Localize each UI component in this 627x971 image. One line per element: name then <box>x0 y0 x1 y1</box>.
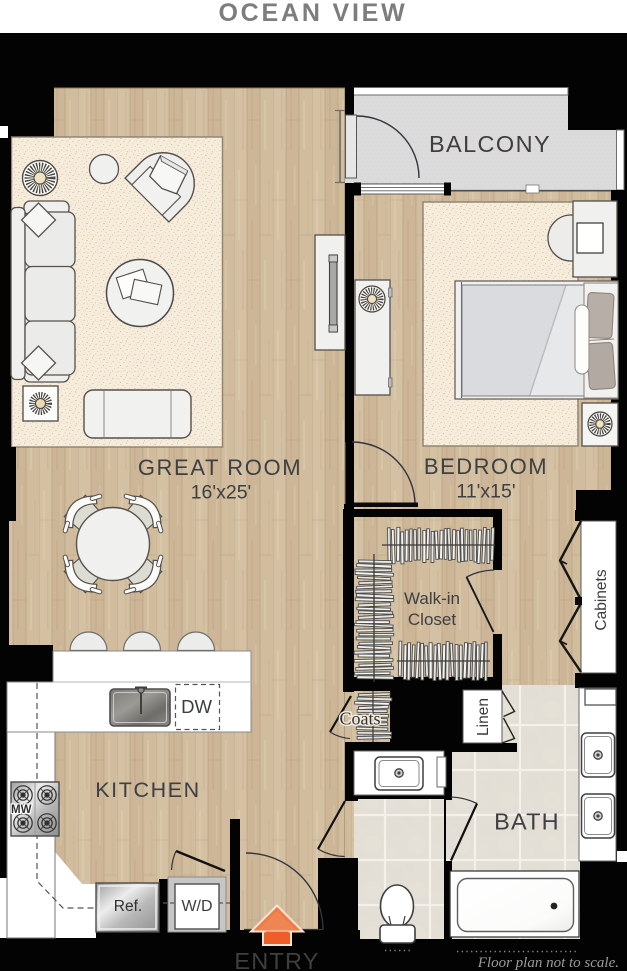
svg-text:Coats: Coats <box>339 709 380 729</box>
svg-text:KITCHEN: KITCHEN <box>95 778 201 802</box>
svg-text:Ref.: Ref. <box>114 898 142 915</box>
svg-text:ENTRY: ENTRY <box>234 948 319 971</box>
svg-text:W/D: W/D <box>181 898 212 915</box>
svg-text:OCEAN VIEW: OCEAN VIEW <box>218 0 407 27</box>
svg-text:MW: MW <box>11 804 32 816</box>
svg-text:Floor plan not to scale.: Floor plan not to scale. <box>477 955 619 971</box>
svg-text:BALCONY: BALCONY <box>429 131 551 157</box>
svg-text:BEDROOM: BEDROOM <box>424 454 548 479</box>
svg-text:BATH: BATH <box>494 809 560 835</box>
svg-text:Linen: Linen <box>475 698 492 736</box>
svg-text:GREAT ROOM: GREAT ROOM <box>138 455 302 480</box>
svg-text:Walk-in: Walk-in <box>404 589 460 608</box>
svg-text:Closet: Closet <box>408 610 456 629</box>
svg-text:11'x15': 11'x15' <box>456 481 515 503</box>
svg-text:Cabinets: Cabinets <box>593 569 610 630</box>
svg-text:DW: DW <box>181 696 212 717</box>
svg-text:16'x25': 16'x25' <box>191 482 252 504</box>
